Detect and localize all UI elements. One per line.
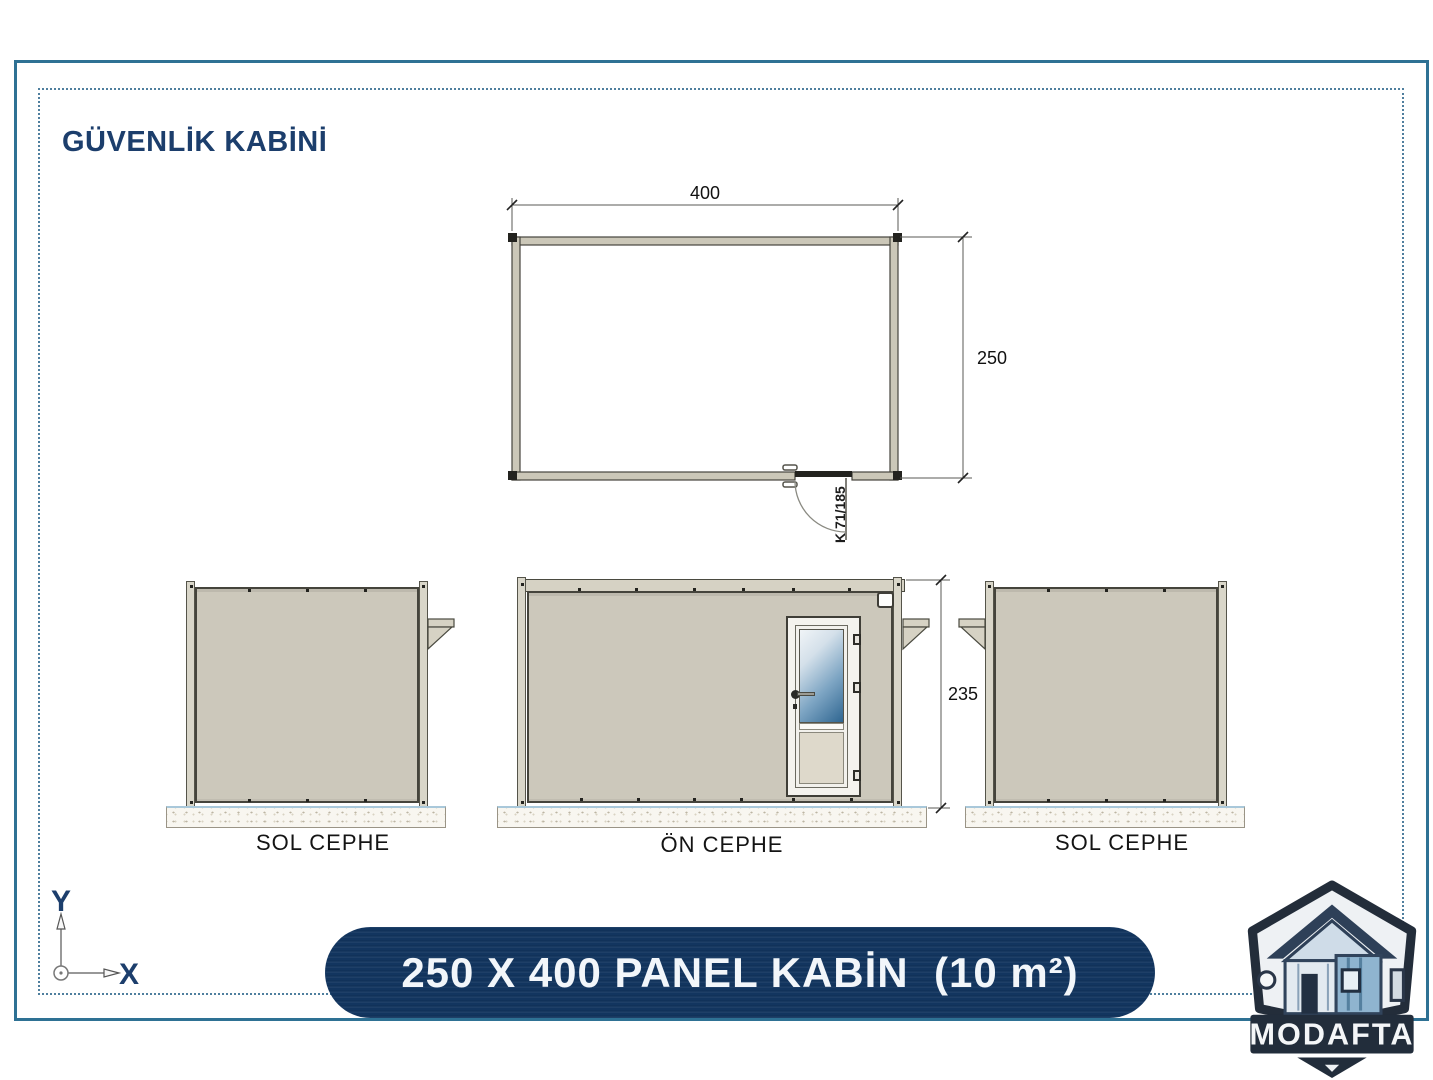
logo-brand-text: MODAFTA — [1249, 1017, 1414, 1051]
right-view-foundation — [965, 806, 1245, 828]
door-glazing-bar — [799, 723, 844, 730]
door-hinge-bottom — [853, 770, 861, 781]
left-view-label: SOL CEPHE — [256, 830, 390, 856]
screw-dot — [1047, 799, 1050, 802]
drawing-sheet: GÜVENLİK KABİNİ SOL CEPHE ÖN CEPHE SOL C… — [0, 0, 1433, 1080]
screw-dot — [693, 798, 696, 801]
right-view-label: SOL CEPHE — [1055, 830, 1189, 856]
screw-dot — [248, 799, 251, 802]
screw-dot — [1047, 589, 1050, 592]
right-view-post-right — [1218, 581, 1227, 809]
brand-logo: MODAFTA — [1240, 880, 1424, 1080]
screw-dot — [190, 801, 193, 804]
door-hinge-top — [853, 634, 861, 645]
door-slab — [795, 625, 848, 788]
screw-dot — [1221, 801, 1224, 804]
screw-dot — [1105, 589, 1108, 592]
product-banner-text: 250 X 400 PANEL KABİN (10 m²) — [401, 949, 1078, 997]
screw-dot — [306, 799, 309, 802]
screw-dot — [248, 589, 251, 592]
right-view-panel — [994, 587, 1218, 803]
screw-dot — [422, 585, 425, 588]
screw-dot — [580, 798, 583, 801]
left-view-post-left — [186, 581, 195, 809]
door-keyhole — [793, 704, 797, 709]
screw-dot — [792, 588, 795, 591]
screw-dot — [792, 798, 795, 801]
screw-dot — [190, 585, 193, 588]
junction-box — [877, 592, 894, 608]
product-banner: 250 X 400 PANEL KABİN (10 m²) — [325, 927, 1155, 1018]
screw-dot — [364, 589, 367, 592]
front-view-label: ÖN CEPHE — [661, 832, 784, 858]
screw-dot — [693, 588, 696, 591]
screw-dot — [740, 798, 743, 801]
door-hinge-middle — [853, 682, 861, 693]
front-view-foundation — [497, 806, 927, 828]
right-view-post-left — [985, 581, 994, 809]
screw-dot — [897, 583, 900, 586]
screw-dot — [637, 798, 640, 801]
screw-dot — [635, 588, 638, 591]
screw-dot — [364, 799, 367, 802]
screw-dot — [578, 588, 581, 591]
screw-dot — [1163, 799, 1166, 802]
screw-dot — [848, 588, 851, 591]
screw-dot — [521, 583, 524, 586]
left-view-foundation — [166, 806, 446, 828]
screw-dot — [850, 798, 853, 801]
screw-dot — [742, 588, 745, 591]
page-title: GÜVENLİK KABİNİ — [62, 126, 327, 159]
door-glass — [799, 629, 844, 723]
screw-dot — [988, 585, 991, 588]
sheet-inner-dotted-border — [38, 88, 1404, 995]
front-view-post-right — [893, 577, 902, 807]
screw-dot — [1163, 589, 1166, 592]
screw-dot — [422, 801, 425, 804]
door-handle-bar — [797, 692, 815, 696]
screw-dot — [897, 801, 900, 804]
door-lower-panel — [799, 732, 844, 784]
front-view-post-left — [517, 577, 526, 807]
screw-dot — [521, 801, 524, 804]
screw-dot — [306, 589, 309, 592]
left-view-post-right — [419, 581, 428, 809]
screw-dot — [988, 801, 991, 804]
screw-dot — [1105, 799, 1108, 802]
left-view-panel — [195, 587, 419, 803]
screw-dot — [1221, 585, 1224, 588]
front-door — [786, 616, 861, 797]
